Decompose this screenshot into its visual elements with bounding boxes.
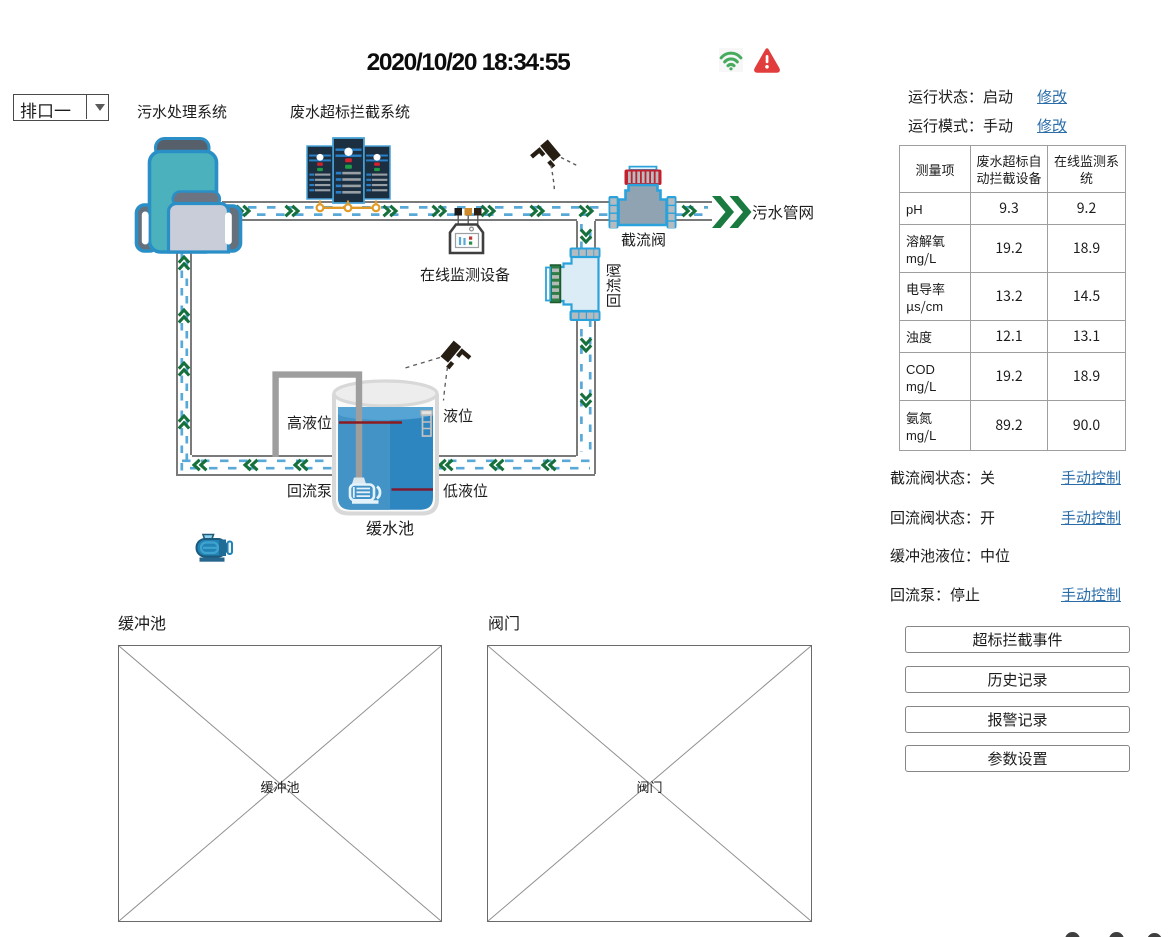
svg-text:低液位: 低液位: [443, 480, 488, 501]
svg-text:回流阀: 回流阀: [603, 263, 624, 308]
svg-text:回流泵: 回流泵: [287, 480, 332, 501]
svg-text:在线监测设备: 在线监测设备: [420, 264, 510, 285]
svg-text:截流阀: 截流阀: [621, 229, 666, 250]
svg-text:缓水池: 缓水池: [366, 515, 414, 539]
svg-text:废水超标拦截系统: 废水超标拦截系统: [290, 101, 410, 122]
svg-text:液位: 液位: [443, 405, 473, 426]
svg-text:污水管网: 污水管网: [752, 201, 814, 223]
svg-text:高液位: 高液位: [287, 412, 332, 433]
svg-text:污水处理系统: 污水处理系统: [137, 101, 227, 122]
